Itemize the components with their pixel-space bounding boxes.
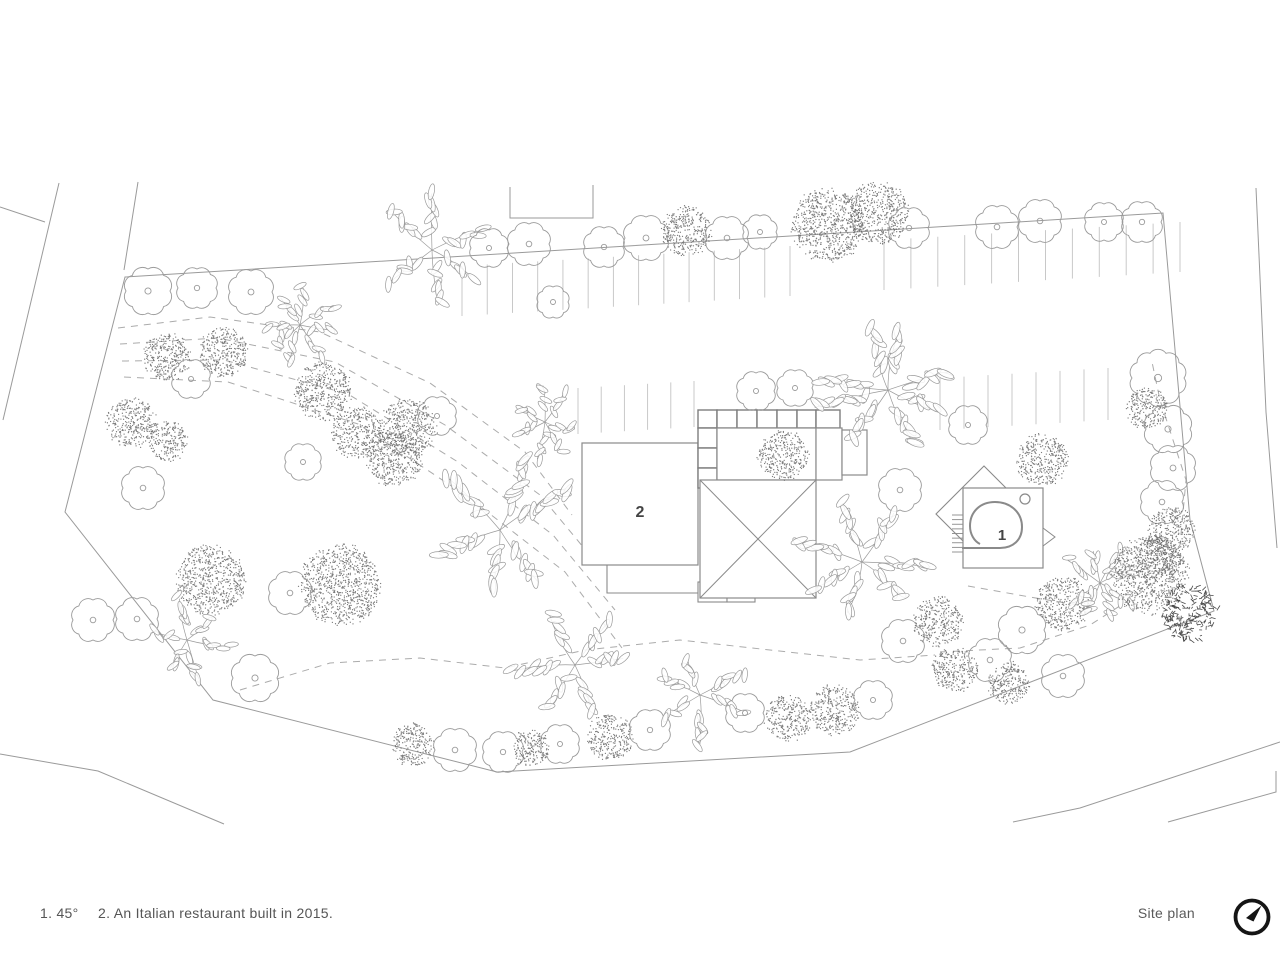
tree-outline xyxy=(72,599,115,642)
tree xyxy=(1141,481,1184,524)
tree-leaf xyxy=(170,589,183,602)
tree xyxy=(385,183,492,309)
tree-leaf xyxy=(385,276,392,292)
entry-structure xyxy=(510,185,593,218)
tree-stipple xyxy=(332,407,383,458)
tree-stipple xyxy=(932,649,978,692)
tree-leaf xyxy=(545,609,562,618)
tree-leaf xyxy=(1125,570,1139,577)
tree-stipple xyxy=(393,723,434,765)
tree-stipple xyxy=(809,685,858,736)
tree xyxy=(514,730,549,765)
north-arrow-icon xyxy=(1231,896,1273,938)
tree-leaf xyxy=(741,668,748,683)
tree-outline xyxy=(1141,481,1184,524)
tree xyxy=(122,467,165,510)
tree xyxy=(483,732,524,773)
tree xyxy=(914,597,963,647)
tree xyxy=(393,723,434,765)
tree-outline xyxy=(1122,202,1163,243)
tree xyxy=(511,382,577,467)
tree-outline xyxy=(737,372,775,410)
tree-stipple xyxy=(105,398,156,447)
tree xyxy=(882,620,925,663)
tree xyxy=(332,407,383,458)
tree-outline xyxy=(854,681,892,719)
tree-leaf xyxy=(547,617,564,624)
tree-leaf xyxy=(538,702,555,710)
tree xyxy=(588,715,633,759)
tree xyxy=(229,270,274,315)
tree-stipple xyxy=(662,206,712,256)
tree-leaf xyxy=(459,262,465,278)
tree xyxy=(149,422,188,462)
building-1: 1 xyxy=(936,466,1055,568)
tree xyxy=(144,334,190,380)
tree-outline xyxy=(949,406,987,444)
tree xyxy=(706,217,749,260)
tree-leaf xyxy=(845,603,851,620)
site-plan-drawing: 21 xyxy=(0,0,1280,960)
tree-leaf xyxy=(276,295,290,305)
tree-outline xyxy=(508,223,551,266)
tree-leaf xyxy=(328,303,342,312)
tree-stipple xyxy=(1017,434,1069,485)
tree-leaf xyxy=(561,384,569,398)
tree-scribble xyxy=(1161,584,1220,643)
legend-note-2: 2. An Italian restaurant built in 2015. xyxy=(98,905,333,921)
tree xyxy=(1122,202,1163,243)
tree-leaf xyxy=(1081,600,1095,607)
tree xyxy=(429,450,575,597)
tree-stipple xyxy=(144,334,190,380)
tree xyxy=(1035,578,1088,631)
tree-stipple xyxy=(514,730,549,765)
tree-leaf xyxy=(466,272,482,287)
tree xyxy=(854,681,892,719)
buildings-layer: 21 xyxy=(582,410,1055,602)
tree xyxy=(285,444,321,480)
tree xyxy=(809,685,858,736)
tree xyxy=(105,398,156,447)
tree xyxy=(949,406,987,444)
tree xyxy=(764,696,810,741)
tree xyxy=(1161,584,1220,643)
tree-leaf xyxy=(606,611,613,628)
tree-outline xyxy=(777,370,813,406)
tree xyxy=(508,223,551,266)
tree-stipple xyxy=(176,545,245,615)
tree-stipple xyxy=(764,696,810,741)
tree xyxy=(777,370,813,406)
tree-leaf xyxy=(728,703,739,719)
tree-stipple xyxy=(989,662,1030,705)
tree xyxy=(662,206,712,256)
tree-leaf xyxy=(1062,555,1076,561)
tree-outline xyxy=(879,469,922,512)
tree-outline xyxy=(483,732,524,773)
tree-outline xyxy=(1085,203,1123,241)
tree-stipple xyxy=(914,597,963,647)
tree xyxy=(879,469,922,512)
tree-stipple xyxy=(588,715,633,759)
tree xyxy=(1017,434,1069,485)
tree xyxy=(231,654,278,701)
tree xyxy=(294,362,351,421)
tree-leaf xyxy=(224,642,238,648)
building-2-label: 2 xyxy=(636,504,645,521)
tree-outline xyxy=(706,217,749,260)
tree-stipple xyxy=(149,422,188,462)
tree-outline xyxy=(624,216,669,261)
tree xyxy=(989,662,1030,705)
site-plan-page: 21 1. 45° 2. An Italian restaurant built… xyxy=(0,0,1280,960)
tree-leaf xyxy=(557,449,570,454)
tree-leaf xyxy=(511,429,525,438)
tree xyxy=(657,653,751,754)
tree xyxy=(176,545,245,615)
tree-stipple xyxy=(294,362,351,421)
tree xyxy=(932,649,978,692)
tree-leaf xyxy=(475,224,492,234)
tree xyxy=(148,589,238,686)
tree-leaf xyxy=(442,469,451,489)
tree-leaf xyxy=(177,601,185,616)
tree xyxy=(72,599,115,642)
tree-outline xyxy=(537,286,569,318)
tree xyxy=(537,286,569,318)
building-1-label: 1 xyxy=(998,527,1006,544)
tree-stipple xyxy=(367,431,423,486)
tree-outline xyxy=(229,270,274,315)
tree-leaf xyxy=(1118,595,1123,609)
drawing-title: Site plan xyxy=(1138,905,1195,921)
tree-leaf xyxy=(194,672,202,687)
tree xyxy=(1126,388,1167,428)
tree-outline xyxy=(976,206,1019,249)
tree xyxy=(201,328,248,377)
tree-leaf xyxy=(293,281,307,291)
tree-stipple xyxy=(201,328,248,377)
tree-leaf xyxy=(560,674,577,683)
tree-leaf xyxy=(429,551,448,558)
tree-outline xyxy=(231,654,278,701)
tree xyxy=(1042,655,1085,698)
tree xyxy=(367,431,423,486)
tree-outline xyxy=(1042,655,1085,698)
tree-leaf xyxy=(186,663,201,671)
tree-stipple xyxy=(1126,388,1167,428)
tree-leaf xyxy=(1067,596,1079,610)
tree-outline xyxy=(285,444,321,480)
tree-leaf xyxy=(491,578,498,597)
legend-note-1: 1. 45° xyxy=(40,905,79,921)
tree xyxy=(1085,203,1123,241)
tree-outline xyxy=(122,467,165,510)
tree xyxy=(737,372,775,410)
tree xyxy=(624,216,669,261)
tree-leaf xyxy=(427,183,436,200)
tree-stipple xyxy=(1035,578,1088,631)
tree-outline xyxy=(882,620,925,663)
tree xyxy=(976,206,1019,249)
tree-leaf xyxy=(451,470,458,489)
